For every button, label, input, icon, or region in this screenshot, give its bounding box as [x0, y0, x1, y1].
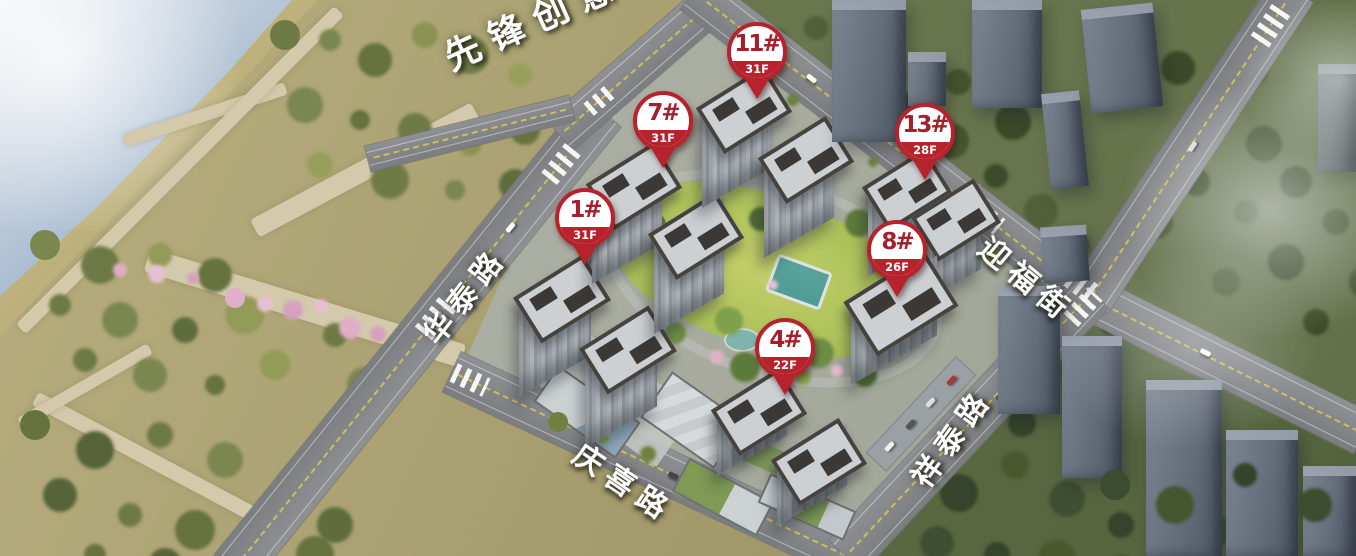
pin-building-number: 13#	[899, 107, 951, 142]
building-pin-7[interactable]: 7# 31F	[633, 91, 693, 168]
tree-cluster	[20, 410, 50, 440]
tree-cluster	[1100, 470, 1130, 500]
pin-floor-count: 22F	[759, 357, 811, 374]
pin-floor-count: 31F	[637, 130, 689, 147]
pin-building-number: 7#	[637, 95, 689, 130]
tree-cluster	[30, 230, 60, 260]
pin-building-number: 11#	[731, 26, 783, 61]
tree-row	[548, 412, 568, 432]
pin-floor-count: 31F	[559, 227, 611, 244]
context-tower	[1303, 466, 1356, 556]
pin-circle: 11# 31F	[727, 22, 787, 82]
area-label-xianfengchuangyi: 先锋创意	[435, 0, 632, 81]
blossom-trees	[225, 288, 245, 308]
pin-floor-count: 31F	[731, 61, 783, 78]
pin-building-number: 4#	[759, 322, 811, 357]
context-tower	[908, 52, 946, 106]
haze	[1060, 250, 1320, 450]
building-pin-13[interactable]: 13# 28F	[895, 103, 955, 180]
context-tower	[972, 0, 1042, 108]
building-pin-8[interactable]: 8# 26F	[867, 220, 927, 297]
building-pin-11[interactable]: 11# 31F	[727, 22, 787, 99]
pin-floor-count: 28F	[899, 142, 951, 159]
pin-building-number: 8#	[871, 224, 923, 259]
haze	[1240, 0, 1356, 160]
pin-circle: 1# 31F	[555, 188, 615, 248]
pin-building-number: 1#	[559, 192, 611, 227]
pin-circle: 8# 26F	[867, 220, 927, 280]
pin-circle: 4# 22F	[755, 318, 815, 378]
pin-floor-count: 26F	[871, 259, 923, 276]
park-path	[32, 392, 269, 527]
aerial-masterplan-rendering: 先锋创意 华泰路 迎福街 祥泰路 庆喜路 11# 31F 7# 31F 13# …	[0, 0, 1356, 556]
pin-circle: 13# 28F	[895, 103, 955, 163]
building-pin-1[interactable]: 1# 31F	[555, 188, 615, 265]
building-pin-4[interactable]: 4# 22F	[755, 318, 815, 395]
tree-cluster	[270, 20, 300, 50]
pin-circle: 7# 31F	[633, 91, 693, 151]
